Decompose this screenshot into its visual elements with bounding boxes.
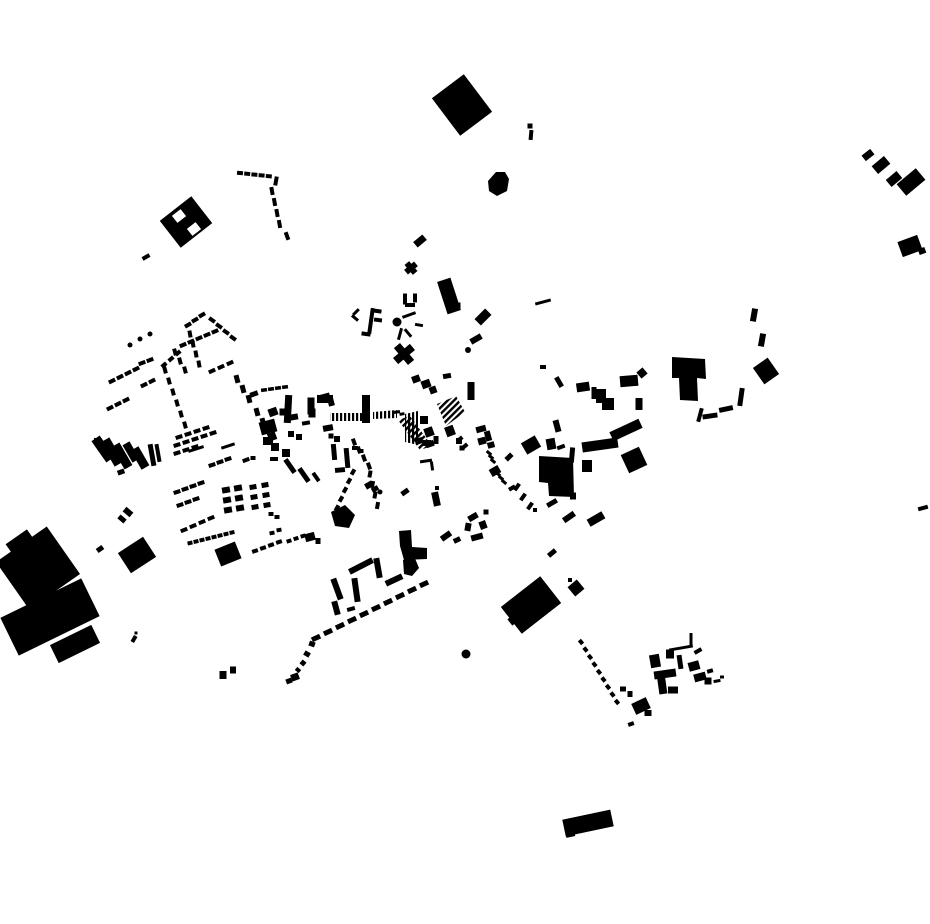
building-dash <box>266 174 272 179</box>
building <box>636 398 643 410</box>
round-building <box>465 347 471 353</box>
building <box>275 515 280 519</box>
round-building <box>393 318 402 327</box>
building <box>288 431 294 437</box>
building <box>276 528 282 533</box>
building <box>296 434 302 440</box>
building <box>282 449 290 457</box>
building <box>251 456 256 460</box>
building <box>582 460 592 472</box>
building-dash <box>251 172 257 177</box>
building <box>568 578 572 582</box>
building <box>434 436 439 444</box>
building <box>405 303 415 307</box>
building <box>316 538 321 544</box>
building <box>420 416 428 424</box>
building <box>230 667 236 674</box>
building <box>269 512 274 516</box>
building <box>135 632 138 635</box>
building <box>335 467 345 473</box>
building <box>705 678 712 685</box>
round-building <box>148 332 153 337</box>
building <box>592 387 597 399</box>
building-dash <box>258 173 264 178</box>
building <box>454 303 461 310</box>
building <box>576 382 590 393</box>
building <box>602 398 614 410</box>
building <box>456 438 462 444</box>
building <box>540 365 546 369</box>
building <box>284 395 292 423</box>
building <box>334 436 340 442</box>
building <box>94 438 100 444</box>
building <box>528 124 533 129</box>
building <box>468 382 475 400</box>
round-building <box>462 650 471 659</box>
building <box>720 676 724 679</box>
building <box>484 510 489 515</box>
building <box>645 710 652 716</box>
building <box>413 294 417 303</box>
round-building <box>138 337 143 342</box>
round-building <box>378 490 383 495</box>
building <box>533 508 537 512</box>
map-canvas <box>0 0 930 924</box>
round-building <box>128 343 133 348</box>
building <box>269 531 275 536</box>
building <box>271 443 279 451</box>
building <box>403 294 407 305</box>
building <box>435 486 439 490</box>
building <box>690 633 693 645</box>
building <box>460 446 465 451</box>
building <box>362 395 370 423</box>
building <box>620 375 639 388</box>
building-dash <box>244 172 250 177</box>
building <box>628 691 633 697</box>
building <box>329 434 334 439</box>
building <box>220 671 227 679</box>
building <box>620 687 626 692</box>
building <box>308 398 315 415</box>
building <box>546 438 557 450</box>
building <box>270 457 278 461</box>
building <box>668 687 678 694</box>
building-footprint-map <box>0 0 930 924</box>
building-dash <box>237 171 243 176</box>
